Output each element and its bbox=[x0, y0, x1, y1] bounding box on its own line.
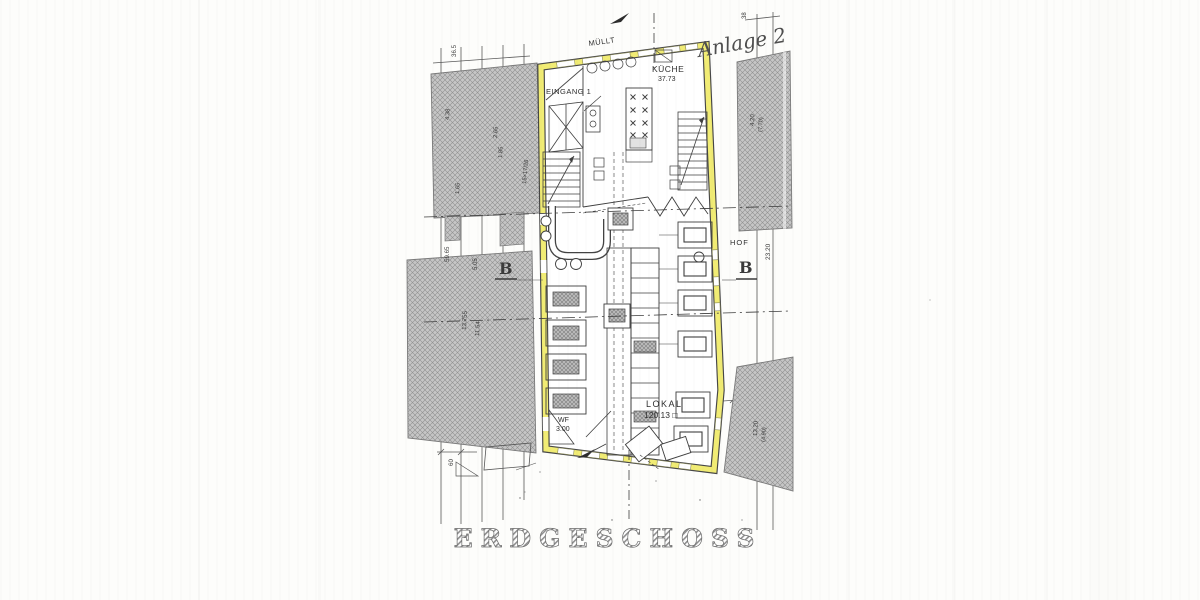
label-lokal-area: 120.13 □ bbox=[644, 410, 678, 420]
bar-stool bbox=[556, 259, 567, 270]
section-marker-left: B bbox=[499, 259, 513, 278]
plan-title: ERDGESCHOSS bbox=[454, 524, 763, 553]
dim-right-c: 13.20 bbox=[753, 420, 760, 436]
left-neighbor-hatch-stub-a bbox=[445, 215, 460, 241]
scanned-floorplan-page: MÜLLT EINGANG 1 KÜCHE 37.73 LOKAL 120.13… bbox=[0, 0, 1200, 600]
label-kueche: KÜCHE bbox=[652, 64, 684, 74]
round-table bbox=[694, 252, 704, 262]
label-eingang: EINGANG 1 bbox=[546, 87, 591, 96]
dim-right-d: (4.90) bbox=[761, 427, 768, 442]
dim-left-top: 36.5 bbox=[451, 44, 458, 57]
label-hof: HOF bbox=[730, 238, 749, 247]
section-marker-right: B bbox=[739, 258, 753, 277]
scan-white-streak bbox=[783, 52, 786, 230]
label-wf: WF bbox=[558, 417, 569, 424]
left-neighbor-building bbox=[407, 44, 541, 524]
dim-left-bottom: 60 bbox=[448, 459, 455, 466]
label-wf-value: 3.00 bbox=[556, 426, 570, 433]
dim-block-b: 2.65 bbox=[493, 127, 500, 139]
dim-left-a: 59.65 bbox=[444, 246, 451, 262]
dim-block-c: 1.85 bbox=[498, 147, 505, 159]
dim-block-a: 4.38 bbox=[445, 109, 452, 121]
dim-right-a: 4.20 bbox=[750, 114, 756, 127]
north-arrow bbox=[610, 13, 629, 24]
dim-left-b: 5.05 bbox=[473, 258, 479, 270]
bar-stool bbox=[571, 259, 582, 270]
floorplan-canvas: MÜLLT EINGANG 1 KÜCHE 37.73 LOKAL 120.13… bbox=[0, 0, 1200, 600]
dim-sheet-tick: 38 bbox=[742, 12, 748, 19]
dim-left-d: 11.54 bbox=[475, 321, 482, 337]
dim-block-d: 1.65 bbox=[455, 183, 462, 195]
dim-left-c: 13.755 bbox=[461, 310, 469, 330]
right-neighbor-building bbox=[723, 12, 793, 530]
left-survey-triangle bbox=[456, 462, 478, 476]
bar-stool bbox=[541, 216, 551, 226]
left-neighbor-hatch-stub-b bbox=[500, 212, 524, 246]
bar-stool bbox=[541, 231, 551, 241]
left-neighbor-hatch-bottom bbox=[407, 251, 536, 453]
label-kueche-area: 37.73 bbox=[658, 76, 676, 83]
dim-right-b: (7.70) bbox=[758, 117, 765, 132]
label-muell: MÜLLT bbox=[588, 35, 616, 48]
dim-hof-depth: 23.20 bbox=[765, 243, 772, 260]
left-neighbor-hatch-top bbox=[431, 63, 541, 218]
label-lokal: LOKAL bbox=[646, 399, 683, 409]
